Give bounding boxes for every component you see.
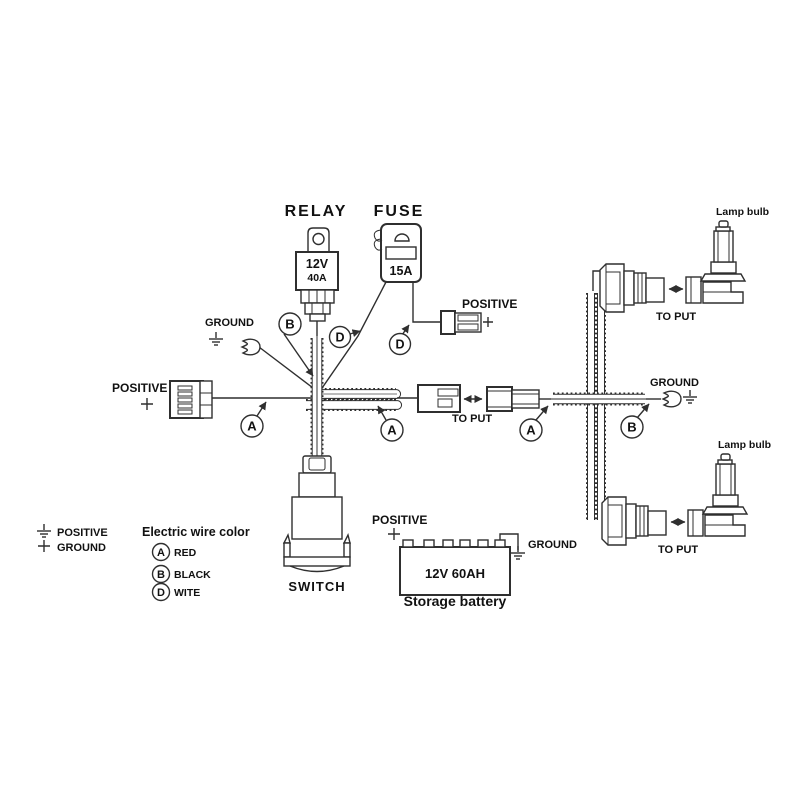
fuse-amp: 15A [390, 264, 413, 278]
svg-text:RED: RED [174, 547, 197, 559]
bundle-center-vertical [312, 336, 322, 464]
switch-clip-right [344, 543, 350, 557]
legend-entry-red: A RED [153, 544, 197, 561]
svg-text:B: B [285, 317, 294, 332]
switch-clip-left [284, 543, 290, 557]
plus-symbol-fuse [483, 317, 493, 327]
relay-amp: 40A [307, 272, 327, 284]
plus-symbol-battery [388, 528, 400, 540]
fuse-window [386, 247, 416, 259]
ground-fork-right [663, 391, 681, 407]
connector-cap [441, 311, 455, 334]
legend-ground-symbol [37, 524, 51, 537]
ground-right-label: GROUND [650, 377, 699, 389]
svg-text:D: D [157, 587, 165, 599]
ground-symbol-battery [511, 546, 525, 559]
relay-mount-hole [313, 234, 324, 245]
lamp-branch-top [600, 206, 769, 323]
connector-housing [170, 381, 203, 418]
relay-plug [310, 314, 325, 321]
svg-text:A: A [247, 419, 257, 434]
relay-title: RELAY [285, 203, 348, 220]
svg-text:B: B [157, 569, 165, 581]
ground-symbol-right [683, 390, 697, 403]
relay-unit: RELAY 12V 40A [285, 203, 348, 321]
relay-pins [305, 303, 330, 314]
svg-text:D: D [335, 331, 344, 345]
battery-positive-label: POSITIVE [372, 513, 427, 527]
legend-plus-symbol [38, 540, 50, 552]
fuse-unit: FUSE 15A [374, 203, 425, 282]
svg-text:B: B [627, 420, 636, 435]
ground-top-left: GROUND [205, 317, 260, 355]
bundle-right-horizontal [551, 394, 646, 404]
to-put-middle-label: TO PUT [452, 413, 492, 425]
switch-neck [299, 473, 335, 497]
legend-title: Electric wire color [142, 525, 250, 539]
svg-text:A: A [387, 423, 397, 438]
legend-ground-label: GROUND [57, 542, 106, 554]
connector-positive-left: POSITIVE [112, 381, 212, 418]
plus-symbol-left [141, 398, 153, 410]
ground-symbol-topleft [209, 332, 223, 345]
battery-caption: Storage battery [404, 593, 507, 609]
bundle-right-vertical [588, 291, 605, 521]
callout-a-left: A [241, 402, 266, 437]
callout-b-right: B [621, 404, 649, 438]
connector-pair-middle: TO PUT [418, 385, 539, 425]
wiring-diagram: TO PUT Lamp bulb [0, 0, 800, 800]
callout-a-middle: A [378, 406, 403, 441]
wire-fuse-to-positive [413, 282, 441, 322]
callout-a-right: A [520, 406, 548, 441]
legend-entry-wite: D WITE [153, 584, 201, 601]
switch-unit: SWITCH [284, 456, 350, 594]
wiring-diagram-page: TO PUT Lamp bulb [0, 0, 800, 800]
switch-dome [290, 566, 344, 572]
positive-fuse-label: POSITIVE [462, 297, 517, 311]
legend-entry-black: B BLACK [153, 566, 212, 583]
switch-flange [284, 557, 350, 566]
connector-body [455, 313, 481, 332]
svg-text:A: A [526, 423, 536, 438]
callout-d-left: D [330, 327, 361, 348]
svg-text:A: A [157, 547, 165, 559]
fuse-title: FUSE [374, 203, 425, 220]
switch-label: SWITCH [288, 579, 345, 594]
battery-rating: 12V 60AH [425, 566, 485, 581]
ground-fork-topleft [242, 339, 260, 355]
callout-d-right: D [390, 325, 411, 355]
battery-ground-label: GROUND [528, 539, 577, 551]
switch-body [292, 497, 342, 539]
legend: POSITIVE GROUND Electric wire color A RE… [37, 524, 250, 601]
connector-male-inner [512, 390, 539, 408]
ground-right: GROUND [650, 377, 699, 407]
relay-volt: 12V [306, 257, 329, 271]
ground-topleft-label: GROUND [205, 317, 254, 329]
positive-left-label: POSITIVE [112, 381, 167, 395]
lamp-branch-bottom [602, 439, 771, 556]
svg-text:D: D [395, 338, 404, 352]
legend-positive-label: POSITIVE [57, 527, 108, 539]
svg-text:WITE: WITE [174, 587, 200, 599]
svg-text:BLACK: BLACK [174, 569, 211, 581]
connector-positive-fuse: POSITIVE [441, 297, 517, 334]
connector-lock [200, 381, 212, 418]
battery-unit: POSITIVE 12V 60AH Storage battery GROUND [372, 513, 577, 609]
